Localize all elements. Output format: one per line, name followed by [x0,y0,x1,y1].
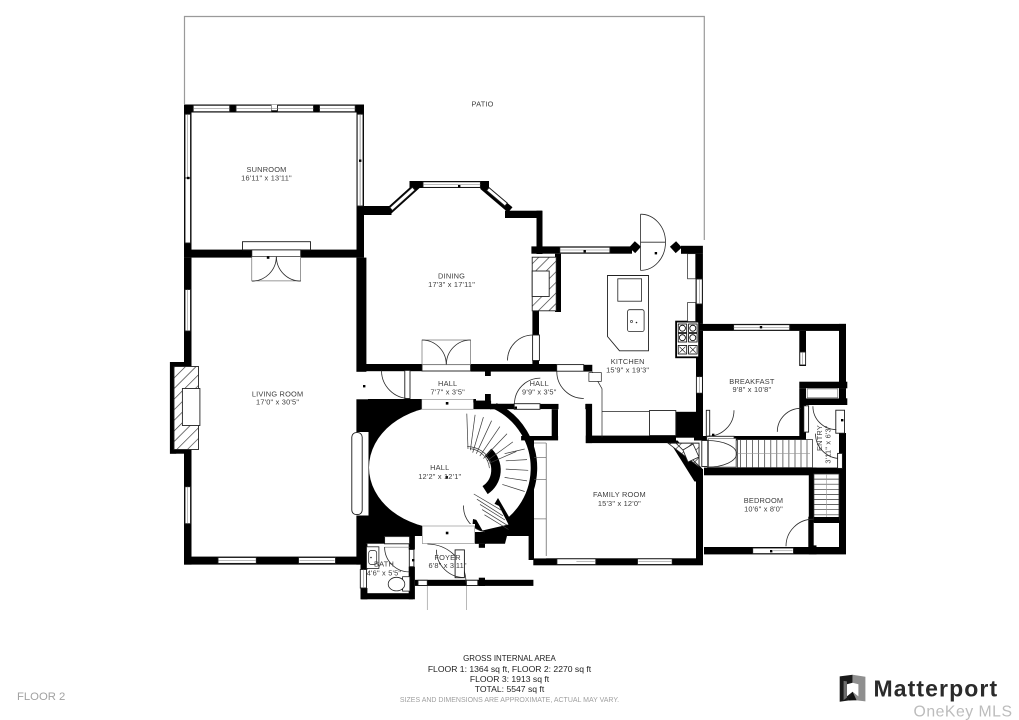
svg-text:17'0" x 30'5": 17'0" x 30'5" [256,398,299,407]
svg-text:9'8" x 10'8": 9'8" x 10'8" [732,385,771,394]
svg-text:3'11" x 6'3": 3'11" x 6'3" [824,425,833,463]
svg-text:HALL: HALL [430,463,449,472]
svg-text:17'3" x 17'11": 17'3" x 17'11" [428,280,475,289]
svg-text:9'9" x 3'5": 9'9" x 3'5" [522,388,557,397]
svg-text:15'3" x 12'0": 15'3" x 12'0" [598,499,641,508]
svg-text:7'7" x 3'5": 7'7" x 3'5" [430,388,465,397]
svg-text:OneKey MLS: OneKey MLS [914,704,1013,720]
svg-text:16'11" x 13'11": 16'11" x 13'11" [241,173,292,182]
svg-text:15'9" x 19'3": 15'9" x 19'3" [606,365,649,374]
svg-text:6'8" x 3'11": 6'8" x 3'11" [428,561,466,570]
svg-text:FAMILY ROOM: FAMILY ROOM [593,490,646,499]
svg-text:4'6" x 5'5": 4'6" x 5'5" [367,569,402,578]
svg-text:BATH: BATH [374,560,394,569]
svg-text:PATIO: PATIO [472,99,494,108]
svg-text:12'2" x 12'1": 12'2" x 12'1" [418,472,461,481]
svg-text:Matterport: Matterport [874,676,999,702]
svg-text:10'6" x 8'0": 10'6" x 8'0" [744,505,783,514]
